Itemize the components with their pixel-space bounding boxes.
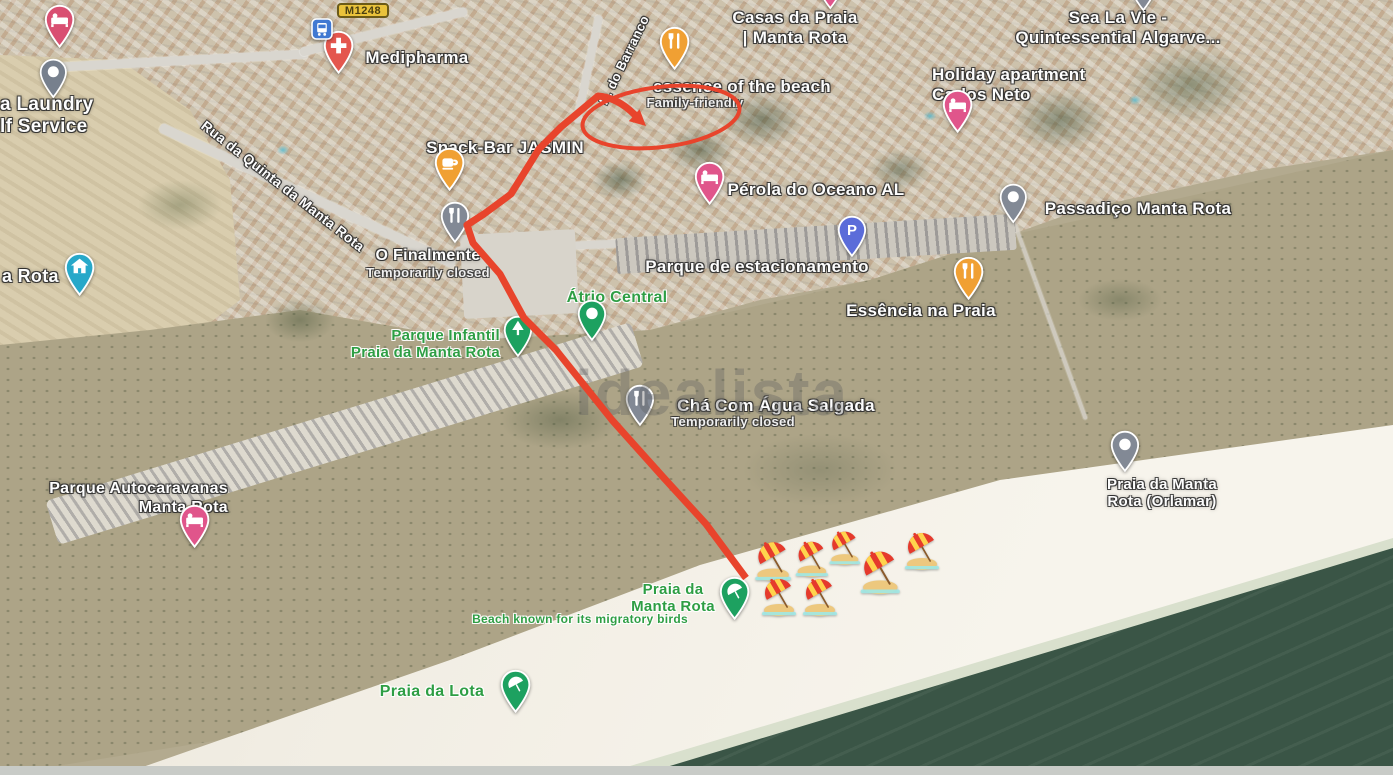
umbrella-icon [719,576,750,620]
window-edge-bar [0,766,1393,775]
coffee-icon [434,147,465,191]
map-label-praia-orlamar[interactable]: Praia da MantaRota (Orlamar) [1107,476,1217,511]
map-pin-cha-com-agua[interactable] [625,384,655,432]
map-pin-o-finalmente[interactable] [440,201,470,249]
map-label-line: Praia da Manta Rota [351,344,500,361]
map-label-line: Chá Com Água Salgada [677,396,875,416]
map-label-passadico-manta-rota[interactable]: Passadiço Manta Rota [1045,199,1231,219]
fork-icon [953,256,984,300]
map-label-line: Holiday apartment [932,65,1085,85]
satellite-map[interactable] [0,0,1393,775]
map-pin-lodging-topleft[interactable] [44,4,75,53]
map-label-line: Family-friendly [647,95,744,110]
map-label-line: Parque Infantil [351,327,500,344]
map-pin-autocaravanas[interactable] [179,504,210,553]
map-label-cha-status: Temporarily closed [671,414,795,429]
map-pin-praia-da-lota[interactable] [500,669,531,718]
map-label-a-rota[interactable]: a Rota [2,266,59,287]
home-icon [64,252,95,296]
map-pin-coffee-jasmin[interactable] [434,147,465,196]
map-pin-cut-pin-top-center[interactable] [816,0,845,15]
map-pin-essencia-na-praia[interactable] [953,256,984,305]
beach-umbrella-icon [855,547,906,603]
bed-icon [942,89,973,133]
map-label-medipharma[interactable]: Medipharma [365,48,468,68]
bed-icon [179,504,210,548]
map-pin-carlos-neto[interactable] [942,89,973,138]
map-label-praia-da-manta-rota[interactable]: Praia daManta Rota [631,581,715,616]
map-pin-parque-infantil[interactable] [503,315,533,363]
map-label-line: Pérola do Oceano AL [728,180,905,200]
map-label-parque-infantil[interactable]: Parque InfantilPraia da Manta Rota [351,327,500,362]
map-label-parque-estacionamento[interactable]: Parque de estacionamento [645,257,869,277]
fork-icon [625,384,655,427]
map-label-line: Praia da [631,581,715,598]
map-pin-passadico[interactable] [999,183,1028,229]
map-label-line: Praia da Manta [1107,476,1217,493]
map-pin-parking[interactable]: P [837,215,867,263]
map-label-beach-migratory-birds: Beach known for its migratory birds [472,613,688,627]
tree-icon [503,315,533,358]
beach-umbrella-icon [757,575,801,624]
map-pin-praia-manta-rota[interactable] [719,576,750,625]
map-label-line: Beach known for its migratory birds [472,613,688,627]
map-label-o-finalmente[interactable]: O Finalmente [376,247,481,266]
dot-icon [1129,0,1158,12]
umbrella-icon [500,669,531,713]
dot-icon [1110,430,1140,473]
map-label-line: Parque Autocaravanas [49,480,228,499]
map-label-perola-do-oceano[interactable]: Pérola do Oceano AL [728,180,905,200]
map-label-line: Temporarily closed [671,414,795,429]
map-pin-laundry[interactable] [39,58,68,104]
map-pin-bus-stop[interactable] [311,18,333,45]
bed-icon [44,4,75,48]
dot-icon [39,58,68,99]
bus-stop-icon [311,18,333,40]
vegetation-blobs [0,0,1393,775]
map-pin-restaurant-barranco[interactable] [659,26,690,75]
dot-icon [816,0,845,10]
map-label-o-finalmente-status: Temporarily closed [366,265,490,280]
map-label-essence-of-the-beach[interactable]: essence of the beach [653,77,831,97]
map-label-line: O Finalmente [376,247,481,266]
map-label-family-friendly: Family-friendly [647,95,744,110]
dot-icon [999,183,1028,224]
bed-icon [694,161,725,205]
map-label-line: Sea La Vie - [1015,8,1220,28]
map-pin-atrio-central[interactable] [577,299,607,347]
map-pin-cut-pin-top-right[interactable] [1129,0,1158,17]
fork-icon [659,26,690,70]
fork-icon [440,201,470,244]
map-label-cha-com-agua-salgada[interactable]: Chá Com Água Salgada [677,396,875,416]
map-label-line: Quintessential Algarve... [1015,28,1220,48]
svg-text:P: P [847,223,857,240]
map-label-sea-la-vie[interactable]: Sea La Vie -Quintessential Algarve... [1015,8,1220,47]
map-label-line: essence of the beach [653,77,831,97]
map-label-line: Parque de estacionamento [645,257,869,277]
map-pin-a-rota-town[interactable] [64,252,95,301]
map-label-line: Praia da Lota [380,683,484,702]
road-shield-m1248: M1248 [337,3,389,18]
map-label-line: Rota (Orlamar) [1107,493,1217,510]
map-label-line: | Manta Rota [732,28,857,48]
beach-umbrella-icon [900,529,944,578]
map-label-line: Medipharma [365,48,468,68]
map-viewport: P Casas da Praia| Manta RotaSea La Vie -… [0,0,1393,775]
map-label-line: Temporarily closed [366,265,490,280]
map-label-line: lf Service [0,116,94,138]
map-label-line: Passadiço Manta Rota [1045,199,1231,219]
map-pin-perola-do-oceano[interactable] [694,161,725,210]
map-label-praia-da-lota[interactable]: Praia da Lota [380,683,484,702]
map-label-line: a Rota [2,266,59,287]
map-pin-praia-orlamar[interactable] [1110,430,1140,478]
P-icon: P [837,215,867,258]
beach-umbrella-icon [798,575,842,624]
dot-icon [577,299,607,342]
